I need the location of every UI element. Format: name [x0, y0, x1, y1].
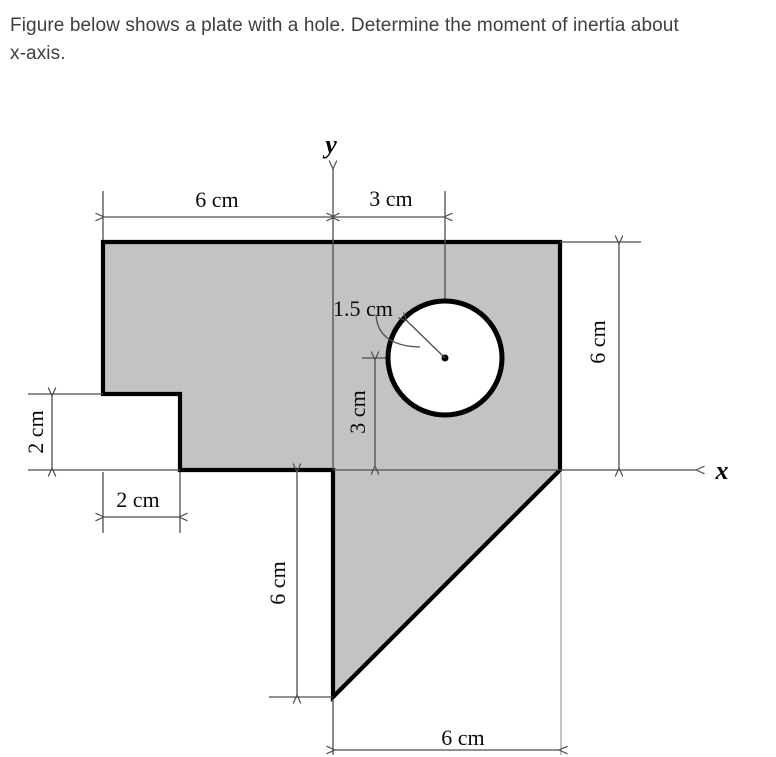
- dim-label-hole-center-height: 3 cm: [345, 390, 370, 433]
- x-axis-label: x: [715, 456, 729, 485]
- page: Figure below shows a plate with a hole. …: [0, 0, 776, 757]
- dim-label-notch-height: 2 cm: [23, 410, 48, 453]
- dim-label-triangle-base: 6 cm: [441, 725, 484, 750]
- plate-figure: 6 cm 3 cm 1.5 cm 6 cm 3 cm 2 cm 2 cm 6 c…: [0, 0, 776, 757]
- dim-label-hole-radius: 1.5 cm: [333, 296, 393, 321]
- dim-label-top-right-width: 3 cm: [369, 186, 412, 211]
- dim-label-right-height: 6 cm: [585, 320, 610, 363]
- dim-label-notch-width: 2 cm: [116, 487, 159, 512]
- dim-label-top-left-width: 6 cm: [195, 187, 238, 212]
- y-axis-label: y: [322, 130, 337, 159]
- dim-label-triangle-height: 6 cm: [265, 561, 290, 604]
